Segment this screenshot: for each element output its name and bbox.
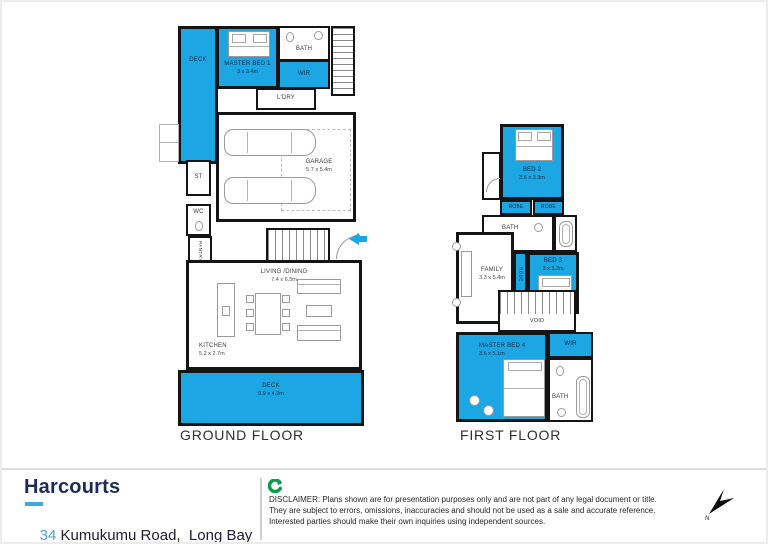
bed-icon — [228, 31, 270, 57]
bathtub-icon — [576, 376, 590, 418]
dining-table-icon — [255, 293, 281, 335]
room-label: WC — [188, 209, 209, 217]
toilet-icon — [286, 32, 294, 42]
ff-bed-2: BED 2 3.6 x 3.3m — [500, 124, 564, 200]
ff-shower — [554, 215, 577, 252]
room-label: BATH — [552, 394, 568, 402]
room-label: ROBE — [518, 267, 524, 282]
entry-arrow-icon — [349, 233, 359, 245]
coffee-table-icon — [306, 305, 332, 317]
gf-wc: WC — [186, 204, 211, 236]
ground-floor-title: GROUND FLOOR — [180, 427, 304, 443]
north-arrow-icon — [706, 488, 736, 518]
gf-store: ST — [186, 160, 211, 196]
bed-icon — [515, 129, 553, 161]
pillow — [508, 362, 542, 371]
ff-landing — [482, 152, 501, 200]
room-label: FAMILY — [481, 267, 503, 275]
room-label: GARAGE — [306, 159, 333, 167]
room-dims: 3.3 x 5.4m — [479, 275, 505, 282]
windshield-line — [247, 180, 248, 201]
room-label: WIR — [298, 71, 310, 79]
room-dims: 3 x 3.2m — [542, 266, 563, 273]
room-label: LIVING /DINING — [261, 269, 308, 277]
room-label: BED 2 — [523, 167, 541, 175]
car-icon — [224, 177, 316, 204]
disclaimer-text: DISCLAIMER: Plans shown are for presenta… — [269, 495, 693, 527]
basin-icon — [314, 31, 323, 40]
room-label: BED 3 — [544, 258, 562, 266]
disclaimer-line: They are subject to errors, omissions, i… — [269, 506, 693, 517]
toilet-icon — [195, 221, 203, 231]
windshield-line — [291, 132, 292, 153]
sofa-icon — [297, 325, 341, 341]
room-label: MASTER BED 4 — [479, 343, 525, 351]
room-dims: 3.6 x 3.3m — [519, 175, 545, 182]
logo-underline — [25, 502, 43, 506]
chair-icon — [246, 295, 254, 303]
room-label: DECK — [262, 383, 279, 391]
room-label: ROBE — [541, 204, 556, 210]
gf-bath: BATH — [278, 26, 330, 61]
sofa-line — [298, 284, 340, 285]
gf-external-stairs — [331, 26, 355, 96]
first-floor-title: FIRST FLOOR — [460, 427, 561, 443]
room-dims: 5.7 x 5.4m — [306, 167, 332, 174]
gf-master-bed-1: MASTER BED 1 3 x 3.4m — [216, 26, 279, 89]
ff-robe-left: ROBE — [500, 200, 532, 215]
gf-landing-step — [159, 124, 179, 162]
gf-garage: GARAGE 5.7 x 5.4m — [216, 112, 356, 222]
basin-icon — [557, 408, 566, 417]
ff-robe-right: ROBE — [533, 200, 564, 215]
porthole-window-icon — [452, 298, 461, 307]
disclaimer-line: Interested parties should make their own… — [269, 517, 693, 528]
room-label: ST — [194, 174, 202, 182]
room-dims: 3 x 3.4m — [237, 69, 258, 76]
bed-fold — [229, 46, 269, 47]
bed-fold — [504, 388, 544, 389]
room-label: ROBE — [509, 204, 524, 210]
chair-icon — [246, 309, 254, 317]
toilet-icon — [556, 366, 564, 376]
room-label: BATH — [280, 46, 328, 54]
porthole-window-icon — [452, 242, 461, 251]
windshield-line — [291, 180, 292, 201]
sofa-icon — [297, 279, 341, 294]
address-street: Kumukumu Road, Long Bay — [56, 527, 252, 544]
car-icon — [224, 129, 316, 156]
shower-tray — [562, 224, 570, 244]
sofa-line — [298, 330, 340, 331]
footer-vertical-divider — [260, 478, 262, 540]
room-label: WIR — [564, 341, 576, 349]
chair-icon — [483, 405, 494, 416]
gf-deck-top: DECK — [178, 26, 218, 164]
room-label: DECK — [189, 57, 206, 65]
pillow — [537, 132, 551, 141]
footer-divider-line — [2, 468, 768, 470]
ff-bath-bottom: BATH — [548, 358, 593, 422]
floorplan-page: DECK MASTER BED 1 3 x 3.4m BATH WIR — [0, 0, 768, 544]
disclaimer-line: DISCLAIMER: Plans shown are for presenta… — [269, 495, 693, 506]
gf-internal-stairs — [266, 228, 330, 264]
gf-laundry: L'DRY — [256, 88, 316, 110]
room-label: VOID — [500, 318, 574, 325]
room-label: KITCHEN — [199, 343, 227, 351]
property-address: 34 Kumukumu Road, Long Bay — [23, 510, 252, 544]
ff-stairwell: VOID — [498, 290, 576, 332]
chair-icon — [282, 295, 290, 303]
pillow — [542, 278, 570, 287]
gf-deck-bottom: DECK 9.9 x 4.2m — [178, 370, 364, 426]
pillow — [518, 132, 532, 141]
north-label: N — [705, 516, 709, 522]
ff-master-bed-4: MASTER BED 4 3.6 x 5.1m — [456, 332, 548, 422]
stairs — [500, 292, 574, 314]
chair-icon — [282, 309, 290, 317]
room-label: L'DRY — [277, 95, 295, 103]
shower-icon — [559, 221, 573, 247]
pillow — [253, 34, 267, 43]
chair-icon — [246, 323, 254, 331]
sink-icon — [222, 306, 230, 316]
pillow — [232, 34, 246, 43]
door-arc — [486, 178, 500, 192]
gf-wir: WIR — [278, 60, 330, 89]
room-label: MASTER BED 1 — [224, 61, 270, 69]
room-dims: 5.2 x 2.7m — [199, 351, 227, 358]
windshield-line — [247, 132, 248, 153]
room-label: PANTRY — [197, 241, 203, 262]
room-dims: 3.6 x 5.1m — [479, 351, 525, 358]
chair-icon — [469, 395, 480, 406]
corelogic-icon — [268, 479, 282, 493]
bed-fold — [516, 146, 552, 147]
gf-living-dining: LIVING /DINING 7.4 x 6.5m — [186, 260, 362, 370]
kitchen-island-icon — [217, 283, 235, 337]
room-dims: 7.4 x 6.5m — [271, 277, 297, 284]
room-dims: 9.9 x 4.2m — [258, 391, 284, 398]
bathtub-inner — [579, 379, 587, 415]
chair-icon — [282, 323, 290, 331]
bed-icon — [503, 359, 545, 417]
address-number: 34 — [40, 527, 57, 544]
ff-wir: WIR — [548, 332, 593, 358]
entry-arrow-stem — [359, 236, 367, 242]
harcourts-logo: Harcourts — [24, 476, 120, 499]
landing-divider — [160, 142, 178, 143]
basin-icon — [534, 223, 543, 232]
